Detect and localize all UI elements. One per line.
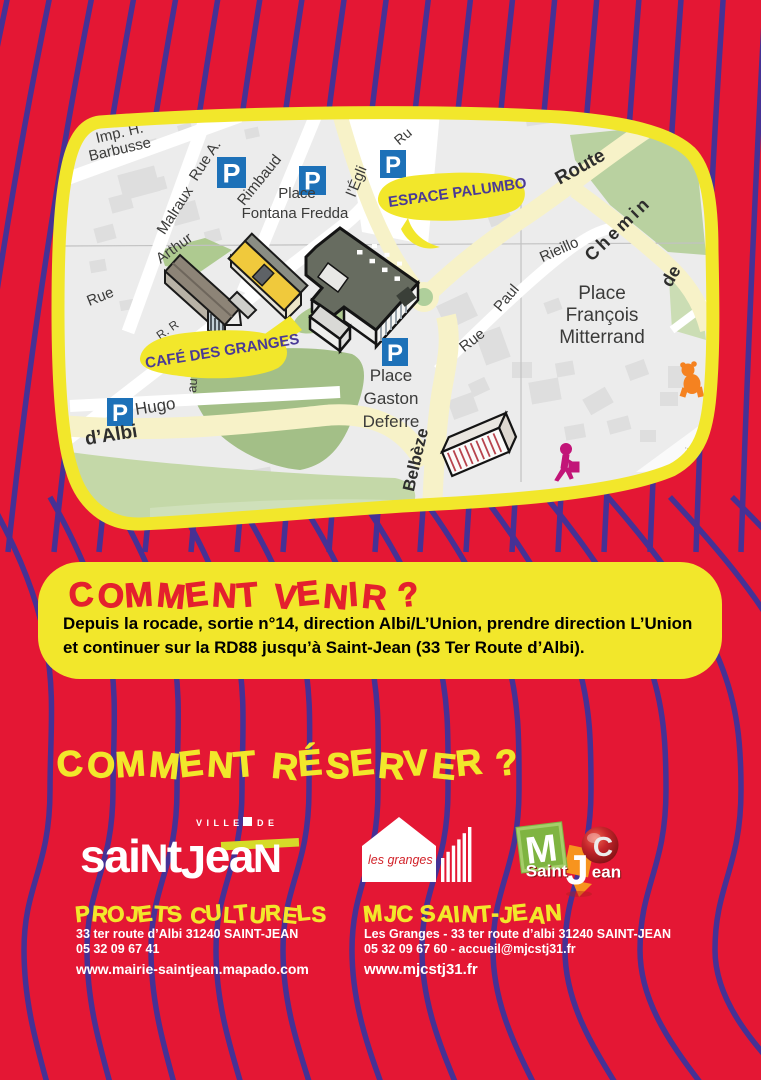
svg-text:Saint: Saint xyxy=(526,861,568,880)
svg-text:COMMENT VENIR ?: COMMENT VENIR ? xyxy=(67,574,423,618)
svg-text:C: C xyxy=(593,831,613,862)
svg-text:Fontana Fredda: Fontana Fredda xyxy=(242,205,349,222)
svg-text:05 32 09 67 60 - accueil@mjcst: 05 32 09 67 60 - accueil@mjcstj31.fr xyxy=(364,942,576,956)
svg-text:COMMENT RÉSERVER ?: COMMENT RÉSERVER ? xyxy=(55,740,523,788)
svg-text:Deferre: Deferre xyxy=(363,412,420,431)
svg-text:www.mairie-saintjean.mapado.co: www.mairie-saintjean.mapado.com xyxy=(75,961,309,977)
svg-text:François: François xyxy=(566,305,639,326)
svg-text:ean: ean xyxy=(592,862,621,881)
svg-text:au: au xyxy=(184,378,200,394)
svg-text:Gaston: Gaston xyxy=(364,389,419,408)
svg-text:Place: Place xyxy=(578,283,626,304)
svg-text:33 ter route d’Albi 31240 SAIN: 33 ter route d’Albi 31240 SAINT-JEAN xyxy=(76,927,298,941)
svg-text:P: P xyxy=(222,158,240,188)
svg-text:les granges: les granges xyxy=(368,853,433,867)
svg-text:Mitterrand: Mitterrand xyxy=(559,327,645,348)
svg-text:Les Granges - 33 ter route d’a: Les Granges - 33 ter route d’albi 31240 … xyxy=(364,927,671,941)
svg-text:D E: D E xyxy=(257,818,275,828)
svg-text:www.mjcstj31.fr: www.mjcstj31.fr xyxy=(363,961,478,978)
svg-text:V I L L E: V I L L E xyxy=(196,818,240,828)
svg-text:05 32 09 67 41: 05 32 09 67 41 xyxy=(76,942,159,956)
svg-text:P: P xyxy=(387,340,403,367)
svg-text:PROJETS CULTURELS: PROJETS CULTURELS xyxy=(74,900,327,929)
svg-text:J: J xyxy=(565,846,588,893)
svg-text:Depuis la rocade, sortie n°14,: Depuis la rocade, sortie n°14, direction… xyxy=(63,614,692,633)
svg-text:Place: Place xyxy=(370,366,413,385)
svg-text:saiNtJeaN: saiNtJeaN xyxy=(80,830,280,888)
svg-text:Place: Place xyxy=(278,185,316,202)
svg-text:P: P xyxy=(385,152,401,179)
svg-text:et continuer sur la RD88 jusqu: et continuer sur la RD88 jusqu’à Saint-J… xyxy=(63,638,585,657)
